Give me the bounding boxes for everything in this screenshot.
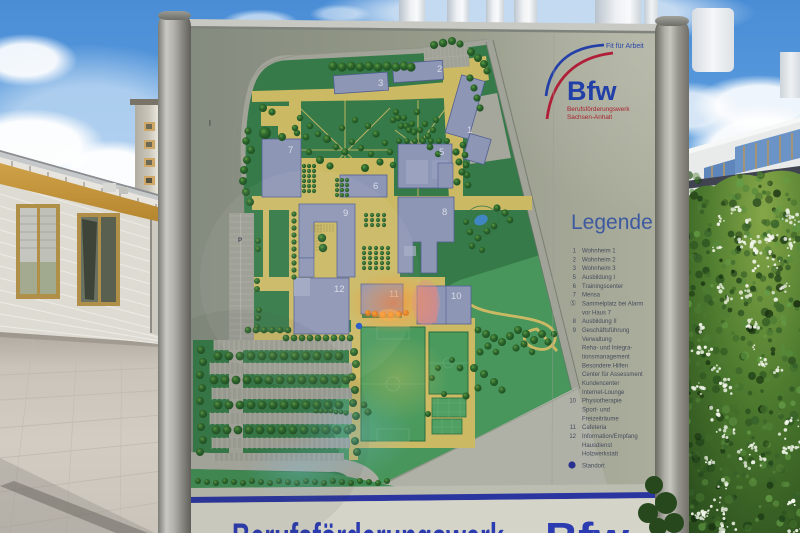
svg-text:11: 11: [570, 425, 577, 431]
svg-text:Holzwerkstatt: Holzwerkstatt: [582, 452, 618, 458]
svg-text:Bfw: Bfw: [545, 514, 630, 533]
svg-text:Wohnheim 2: Wohnheim 2: [582, 257, 616, 263]
svg-text:Freizeiträume: Freizeiträume: [582, 416, 619, 422]
svg-text:10: 10: [569, 399, 576, 405]
svg-text:5: 5: [439, 147, 444, 158]
svg-text:1: 1: [467, 125, 472, 136]
svg-text:7: 7: [288, 145, 293, 156]
svg-text:Physiotherapie: Physiotherapie: [582, 399, 622, 405]
svg-text:Sammelplatz bei Alarm: Sammelplatz bei Alarm: [582, 302, 643, 308]
svg-text:2: 2: [437, 64, 442, 75]
svg-text:vor Haus 7: vor Haus 7: [582, 310, 612, 316]
svg-text:Verwaltung: Verwaltung: [582, 337, 612, 343]
svg-text:Sachsen-Anhalt: Sachsen-Anhalt: [567, 114, 612, 121]
svg-text:Fit für Arbeit: Fit für Arbeit: [606, 43, 644, 50]
svg-text:Sport- und: Sport- und: [582, 407, 610, 413]
svg-text:12: 12: [569, 434, 576, 440]
svg-text:6: 6: [373, 181, 378, 192]
svg-text:Internet-Lounge: Internet-Lounge: [582, 390, 625, 396]
svg-text:Legende: Legende: [571, 211, 653, 234]
svg-text:3: 3: [378, 78, 383, 89]
svg-text:8: 8: [442, 207, 447, 218]
svg-text:Ausbildung II: Ausbildung II: [582, 319, 617, 325]
svg-text:Trainingscenter: Trainingscenter: [582, 284, 623, 290]
svg-text:Center für Assessment: Center für Assessment: [582, 372, 643, 378]
svg-text:Reha- und Integra-: Reha- und Integra-: [582, 346, 632, 352]
svg-text:Wohnheim 1: Wohnheim 1: [582, 249, 616, 255]
svg-text:Information/Empfang: Information/Empfang: [582, 434, 638, 440]
svg-text:Kundencenter: Kundencenter: [582, 381, 619, 387]
svg-text:Geschäftsführung: Geschäftsführung: [582, 328, 629, 334]
svg-text:Wohnheim 3: Wohnheim 3: [582, 266, 616, 272]
svg-text:Ausbildung I: Ausbildung I: [582, 275, 615, 281]
svg-text:Bfw: Bfw: [567, 76, 617, 106]
svg-text:Mensa: Mensa: [582, 293, 601, 299]
svg-text:Cafeteria: Cafeteria: [582, 425, 607, 431]
svg-text:Hausdienst: Hausdienst: [582, 443, 612, 449]
svg-text:tionsmanagement: tionsmanagement: [582, 355, 630, 361]
svg-text:Standort: Standort: [582, 464, 605, 470]
svg-text:Berufsförderungswerk: Berufsförderungswerk: [567, 106, 630, 113]
svg-text:10: 10: [451, 291, 462, 302]
svg-text:Besondere Hilfen: Besondere Hilfen: [582, 363, 628, 369]
svg-text:Ⓢ: Ⓢ: [570, 300, 576, 308]
